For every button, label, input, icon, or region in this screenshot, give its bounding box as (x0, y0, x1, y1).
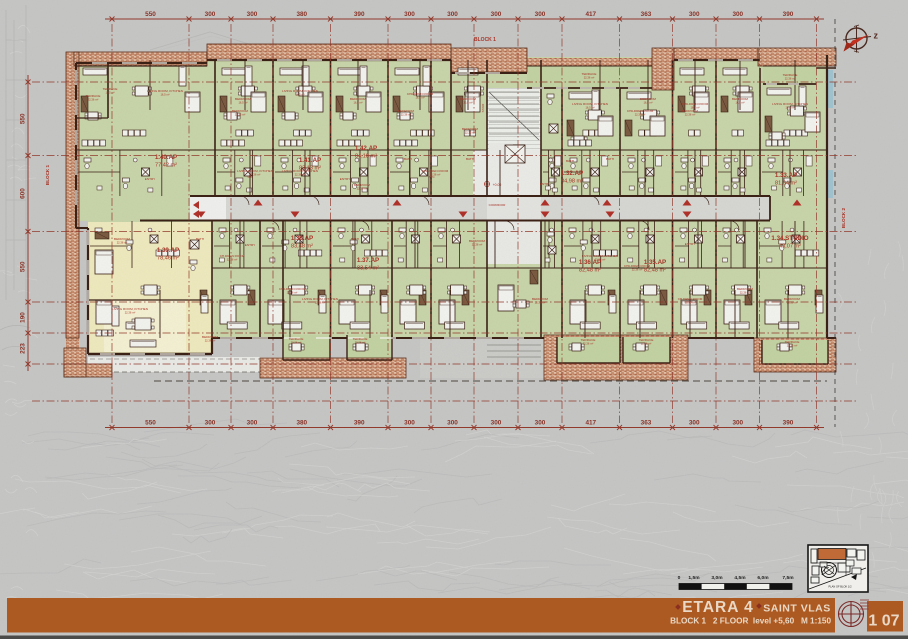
svg-text:1 07: 1 07 (868, 613, 899, 630)
svg-text:PLAN OF BLOK 1/2: PLAN OF BLOK 1/2 (828, 585, 852, 589)
svg-text:0: 0 (678, 575, 681, 581)
svg-text:4,5m: 4,5m (734, 575, 746, 581)
svg-text:1,5m: 1,5m (688, 575, 700, 581)
svg-text:ETARA 4: ETARA 4 (682, 599, 754, 616)
svg-text:SAINT VLAS: SAINT VLAS (763, 603, 830, 615)
svg-text:7,5m: 7,5m (782, 575, 794, 581)
svg-text:BLOCK 1 2 FLOOR level +5,60: BLOCK 1 2 FLOOR level +5,60 M 1:150 (670, 617, 831, 626)
svg-text:6,0m: 6,0m (757, 575, 769, 581)
svg-text:3,0m: 3,0m (711, 575, 723, 581)
svg-text:z: z (874, 31, 879, 41)
